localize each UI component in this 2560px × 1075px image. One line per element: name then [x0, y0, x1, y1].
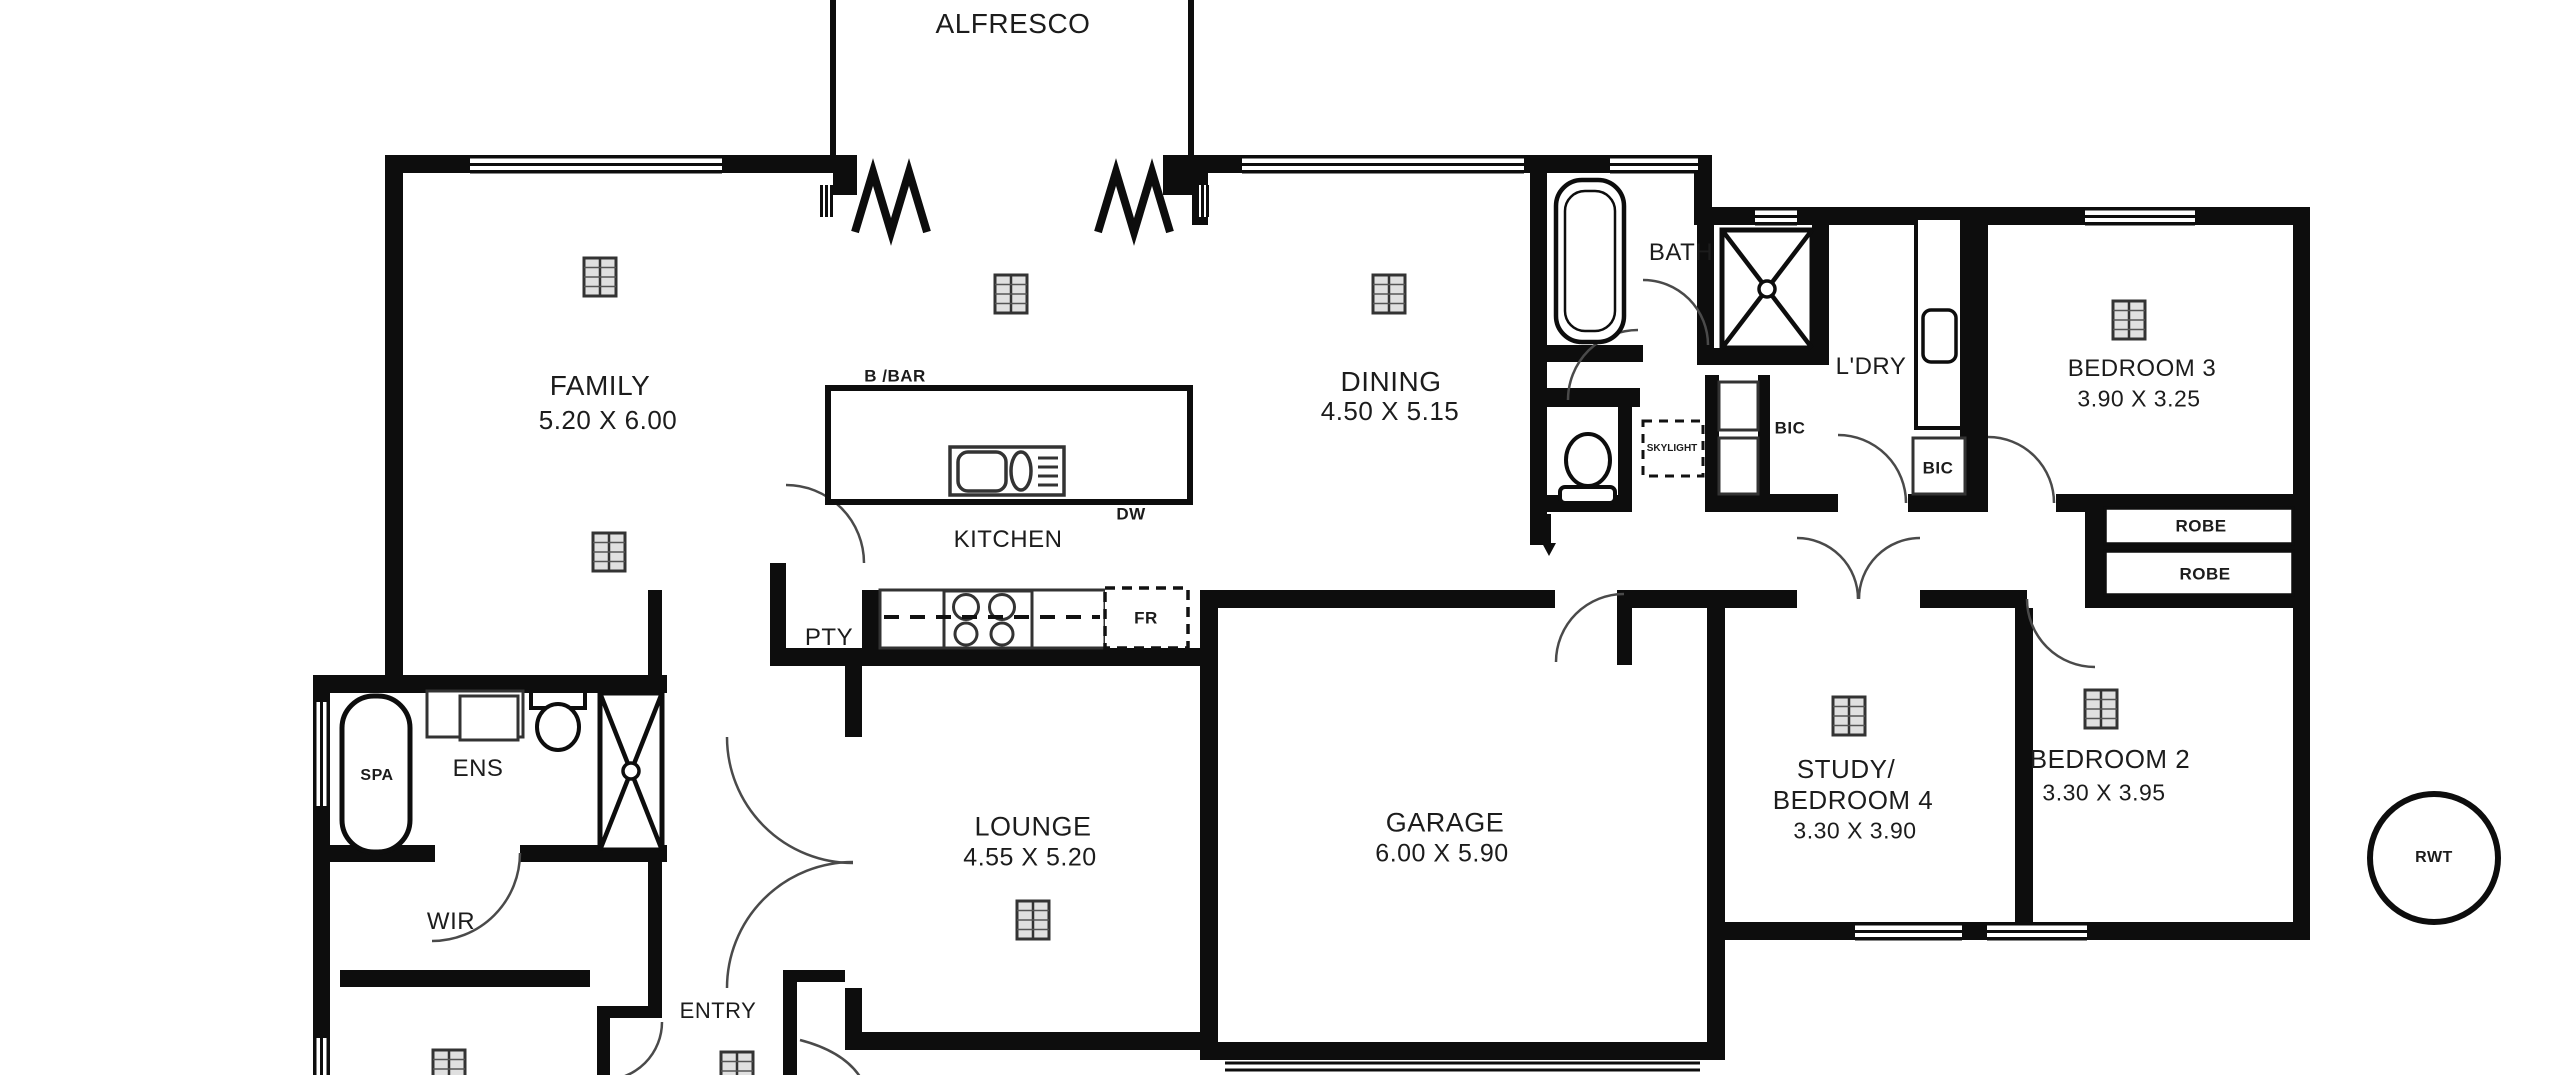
bedroom2-door-arc — [2027, 599, 2095, 667]
skylight-label: SKYLIGHT — [1647, 444, 1698, 454]
bbar-label: B /BAR — [864, 368, 926, 385]
robe-bed2-label: ROBE — [2179, 566, 2230, 583]
window-laundry-top — [1755, 207, 1797, 226]
ceiling-light-icon-bedroom2 — [2085, 690, 2117, 728]
bath-fixtures — [1556, 180, 1812, 503]
study-label: STUDY/ — [1797, 756, 1895, 782]
study-door-arc-left — [1797, 538, 1858, 599]
bedroom3-label: BEDROOM 3 — [2068, 357, 2217, 381]
ceiling-light-icon-bedroom3 — [2113, 301, 2145, 339]
window-study-bottom — [1855, 922, 1962, 941]
garage-door-arc — [1556, 594, 1624, 662]
ens-shower-icon — [600, 693, 662, 850]
bedroom3-dims: 3.90 X 3.25 — [2077, 388, 2200, 411]
robe-bed3-label: ROBE — [2175, 518, 2226, 535]
ens-toilet-icon — [531, 691, 585, 750]
window-family-top — [470, 155, 722, 174]
window-dining-top — [1242, 155, 1524, 174]
bathtub-icon — [1556, 180, 1624, 342]
ceiling-light-icon-entry — [721, 1052, 753, 1075]
sidelight-alfresco-left — [820, 185, 833, 217]
garage-panel-door — [1225, 1063, 1700, 1070]
laundry-door-arc — [1838, 435, 1906, 503]
window-bedroom3-top — [2085, 207, 2195, 226]
ceiling-light-icon-kitchen — [995, 275, 1027, 313]
ceiling-light-icon-study — [1833, 697, 1865, 735]
master-door-arc — [604, 1022, 662, 1075]
bath-label: BATH — [1649, 241, 1713, 265]
ceiling-light-icon-family-2 — [593, 533, 625, 571]
linen-cupboard-1 — [1719, 382, 1758, 430]
wir-label: WIR — [427, 910, 475, 934]
laundry-trough-icon — [1916, 218, 1962, 428]
entry-label: ENTRY — [680, 1000, 757, 1022]
lounge-door-arc-upper — [727, 737, 853, 863]
bedroom3-door-arc — [1988, 437, 2054, 503]
kitchen-island — [828, 388, 1190, 502]
window-bedroom2-bottom — [1987, 922, 2087, 941]
laundry-label: L'DRY — [1836, 355, 1907, 379]
garage-dims: 6.00 X 5.90 — [1375, 842, 1508, 867]
ensuite-label: ENS — [453, 757, 504, 781]
study-door-arc-right — [1859, 538, 1920, 599]
window-ens-left — [313, 702, 330, 806]
sidelight-alfresco-right — [1196, 185, 1209, 217]
window-master-left — [313, 1038, 330, 1075]
dining-label: DINING — [1341, 368, 1442, 396]
dining-dims: 4.50 X 5.15 — [1321, 398, 1460, 424]
kitchen-label: KITCHEN — [954, 528, 1063, 552]
floorplan-drawing — [0, 0, 2560, 1075]
fridge-label: FR — [1134, 610, 1158, 627]
spa-label: SPA — [360, 768, 393, 784]
family-label: FAMILY — [550, 372, 651, 400]
linen-cupboard-2 — [1719, 438, 1758, 494]
lounge-dims: 4.55 X 5.20 — [963, 846, 1096, 871]
stacker-door-left-icon — [855, 172, 927, 232]
ceiling-light-icon-dining — [1373, 275, 1405, 313]
stacker-door-icons — [855, 172, 1170, 232]
lounge-door-arc-lower — [727, 862, 853, 988]
garage-label: GARAGE — [1386, 810, 1505, 837]
lounge-label: LOUNGE — [974, 814, 1091, 841]
rwt-label: RWT — [2415, 850, 2453, 866]
bedroom2-label: BEDROOM 2 — [2030, 746, 2191, 772]
floorplan-canvas: ALFRESCO FAMILY 5.20 X 6.00 B /BAR DW KI… — [0, 0, 2560, 1075]
study-label2: BEDROOM 4 — [1773, 787, 1934, 813]
alfresco-label: ALFRESCO — [936, 10, 1091, 38]
vanity-icon — [427, 691, 523, 740]
dishwasher-label: DW — [1116, 506, 1145, 523]
ceiling-light-icon-master — [433, 1050, 465, 1075]
sink-icon — [950, 447, 1064, 495]
window-bath-top — [1610, 155, 1698, 174]
study-dims: 3.30 X 3.90 — [1793, 820, 1916, 843]
cooktop-icon — [944, 591, 1032, 648]
bic-linen-label: BIC — [1775, 420, 1806, 437]
bedroom2-dims: 3.30 X 3.95 — [2042, 782, 2165, 805]
stacker-door-right-icon — [1098, 172, 1170, 232]
door-arcs — [432, 280, 2095, 1075]
bic-hall-label: BIC — [1923, 460, 1954, 477]
bath-shower-icon — [1722, 230, 1812, 348]
wc-toilet-icon — [1560, 434, 1615, 503]
pantry-label: PTY — [805, 626, 853, 650]
ceiling-light-icon-family-1 — [584, 258, 616, 296]
ceiling-light-icon-lounge — [1017, 901, 1049, 939]
ceiling-lights — [433, 258, 2145, 1075]
family-dims: 5.20 X 6.00 — [539, 407, 678, 433]
